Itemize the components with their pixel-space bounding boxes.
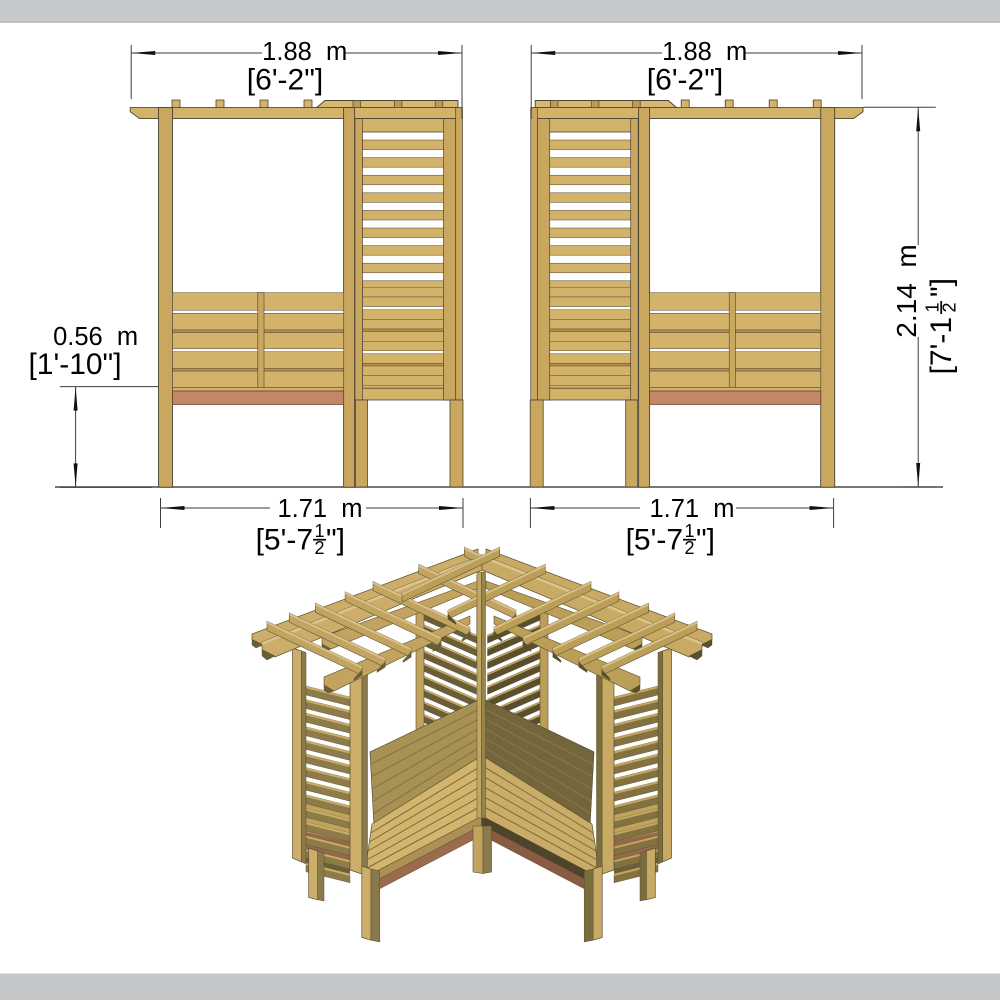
svg-text:"]: "]: [696, 524, 715, 557]
svg-text:1.71 m: 1.71 m: [649, 495, 734, 523]
svg-text:"]: "]: [925, 278, 958, 297]
svg-text:[6'-2"]: [6'-2"]: [647, 64, 723, 97]
svg-text:"]: "]: [326, 524, 345, 557]
svg-text:[5'-7: [5'-7: [626, 524, 683, 557]
svg-text:2.14 m: 2.14 m: [891, 244, 922, 337]
svg-text:[5'-7: [5'-7: [256, 524, 313, 557]
svg-text:2: 2: [940, 302, 960, 312]
svg-text:2: 2: [684, 538, 694, 558]
svg-text:2: 2: [314, 538, 324, 558]
svg-text:[6'-2"]: [6'-2"]: [247, 64, 323, 97]
svg-text:1.71 m: 1.71 m: [277, 495, 362, 523]
svg-text:[7'-1: [7'-1: [925, 317, 958, 374]
svg-text:0.56 m: 0.56 m: [53, 323, 138, 351]
svg-text:1.88 m: 1.88 m: [662, 38, 747, 66]
svg-text:1.88 m: 1.88 m: [262, 38, 347, 66]
svg-text:[1'-10"]: [1'-10"]: [28, 348, 121, 381]
